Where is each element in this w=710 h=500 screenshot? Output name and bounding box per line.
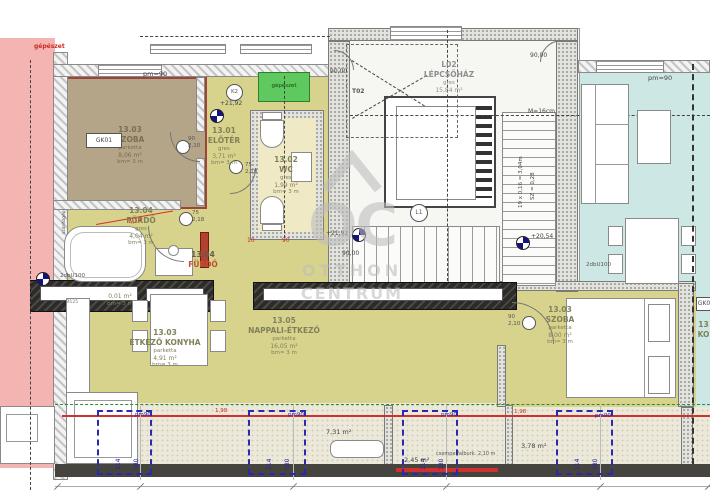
terrace-area-2: 2,45 m² [404, 456, 429, 464]
sofa [581, 84, 629, 204]
room-height: bm= 3 m [110, 362, 220, 369]
window-marker-3: 114 180 [402, 410, 458, 475]
pillow [648, 304, 670, 342]
room-area: 8,00 m² [530, 332, 590, 340]
door-width: 90 [188, 136, 195, 142]
k2-tag-label: K2 [231, 89, 238, 95]
room-finish: parketta [110, 348, 220, 355]
neighbor-unit-left [0, 38, 55, 468]
pm90-window-3: pm90 [441, 412, 457, 418]
tile-cladding-note: csempe falburk. 2,10 m [436, 451, 495, 457]
window-marker-2: 114 180 [248, 410, 306, 475]
room-label-furdo-2: 13.04 FÜRDŐ [180, 250, 226, 270]
room-label-nappali: 13.05 NAPPALI-ÉTKEZŐ parketta 16,05 m² b… [238, 316, 330, 358]
dimension-chain [55, 486, 710, 487]
neighbor-dining-table [625, 218, 679, 284]
gepeszet-note: gépészet [34, 43, 65, 50]
kitchen-counter [66, 298, 90, 394]
room-height: bm= 3 m [530, 339, 590, 346]
room-height: bm= 3 m [196, 160, 252, 167]
gk01-tag: GK01 [86, 133, 122, 148]
k2-tag: K2 [226, 84, 243, 101]
window-height: 180 [133, 459, 140, 470]
room-name: NAPPALI-ÉTKEZŐ [238, 326, 330, 336]
toilet-1 [260, 120, 284, 148]
room-name: FÜRDŐ [180, 260, 226, 270]
window-width: 114 [115, 459, 122, 470]
door-height: 2,18 [245, 169, 257, 175]
room-finish: gres [413, 80, 485, 87]
chair [608, 226, 623, 246]
pillow [648, 356, 670, 394]
room-label-staircase: L02 LÉPCSŐHÁZ gres 15,84 m² [413, 60, 485, 94]
red-dim-90: 90 [282, 237, 290, 244]
door-width: 90 [508, 314, 515, 320]
room-name: KO [697, 330, 710, 340]
room-height: bm= 3 m [80, 159, 180, 166]
t02-label: T02 [352, 88, 364, 95]
terrace-edge-line [55, 404, 710, 405]
axis-left [30, 60, 31, 490]
door-width: 75 [245, 162, 252, 168]
room-area: 16,05 m² [238, 343, 330, 351]
room-area: 4,91 m² [110, 355, 220, 363]
axis-top [140, 36, 330, 37]
room-finish: gres [196, 146, 252, 153]
stair-step-formula: 19 x 0,16 = 3,04m [518, 156, 524, 208]
toilet-2 [260, 196, 284, 224]
room-id: 13.01 [196, 126, 252, 136]
room-id: L02 [413, 60, 485, 70]
room-label-neighbor-kitchen: 13 KO [697, 320, 710, 340]
room-height: bm= 3 m [112, 240, 170, 247]
survey-marker [516, 236, 530, 250]
gk-right-tag: GK0 [696, 297, 710, 311]
lift-tag: L1 [410, 204, 428, 222]
stair-tread-width: SZ = 0,28 [530, 172, 536, 200]
window-neighbor [596, 60, 664, 73]
room-area: 4,04 m² [112, 233, 170, 241]
red-dim-198: 1,98 [514, 409, 526, 415]
terrace-area-3: 3,78 m² [521, 442, 546, 450]
window-height: 180 [592, 459, 599, 470]
room-label-eloter: 13.01 ELŐTÉR gres 3,71 m² bm= 3 m [196, 126, 252, 168]
window-width: 114 [574, 459, 581, 470]
room-finish: parketta [530, 325, 590, 332]
sofa-cushion-line [595, 164, 629, 165]
room-id: 13.04 [112, 206, 170, 216]
red-dim-10: 10 [247, 237, 255, 244]
room-name: SZOBA [530, 315, 590, 325]
sofa-cushion-line [595, 124, 629, 125]
window-height: 180 [438, 459, 445, 470]
room-area: 0,01 m² [100, 293, 140, 301]
angle-90-right: 90,00 [530, 52, 547, 59]
pm90-top-left: pm=90 [143, 70, 167, 78]
room-name: ÉTKEZŐ KONYHA [110, 338, 220, 348]
coffee-table [637, 110, 671, 164]
door-width: 75 [192, 210, 199, 216]
room-label-bedroom2: 13.03 SZOBA parketta 8,00 m² bm= 3 m [530, 305, 590, 347]
pm90-window-4: pm90 [595, 413, 611, 419]
watermark-line1: OTTHON [296, 261, 408, 280]
u100-note-left: 2dbU100 [60, 273, 85, 279]
window-marker-1: 114 180 [97, 410, 152, 475]
survey-marker [210, 109, 224, 123]
window-marker-4: 114 180 [556, 410, 613, 475]
room-finish: gres [112, 226, 170, 233]
stair-flight-right [502, 112, 556, 286]
sofa-back-line [595, 84, 596, 204]
bed-headboard-line [644, 298, 645, 398]
gk-right-label: GK0 [698, 300, 710, 307]
angle-90-left: 90,00 [330, 68, 347, 75]
room-id: 13.04 [180, 250, 226, 260]
room-area: 15,84 m² [413, 87, 485, 95]
scale-note: M=16cm [528, 108, 555, 115]
window-width: 114 [266, 459, 273, 470]
red-dim-198: 1,98 [215, 408, 227, 414]
u100-note-right: 2dbU100 [586, 262, 611, 268]
bedroom1-wall-right-upper [196, 77, 205, 132]
room-id: 13.03 [110, 328, 220, 338]
pipe-note: Ø125 [66, 300, 78, 305]
chair [210, 300, 226, 322]
room-area: 8,06 m² [80, 152, 180, 160]
room-height: bm= 3 m [238, 350, 330, 357]
watermark-line2: CENTRUM [296, 284, 408, 303]
survey-marker [36, 272, 50, 286]
room-label-konyha: 13.03 ÉTKEZŐ KONYHA parketta 4,91 m² bm=… [110, 328, 220, 370]
room-label-hidden: 0,01 m² bm= 3 m [100, 293, 140, 308]
room-height: bm= 3 m [100, 301, 140, 308]
watermark-initials: OC [296, 198, 408, 253]
toilet-cistern-2 [262, 224, 282, 231]
neighbor-terrace-inner [6, 414, 38, 442]
room-id: 13.03 [530, 305, 590, 315]
room-name: ELŐTÉR [196, 136, 252, 146]
pm90-neighbor: pm=90 [648, 74, 672, 82]
elevator-machinery [476, 106, 492, 198]
level-2054: +20,54 [531, 233, 553, 240]
floor-plan: gépészet L1 [0, 0, 710, 500]
room-id: 13 [697, 320, 710, 330]
exterior-sill-1 [150, 44, 226, 54]
stair-wall-right [556, 41, 578, 292]
window-height: 180 [284, 459, 291, 470]
room-area: 3,71 m² [196, 153, 252, 161]
terrace-area-1: 7,31 m² [326, 428, 351, 436]
gk01-label: GK01 [96, 137, 112, 144]
toilet-cistern-1 [262, 112, 282, 120]
level-2192-a: +21,92 [220, 100, 242, 107]
room-finish: parketta [238, 336, 330, 343]
room-name: LÉPCSŐHÁZ [413, 70, 485, 80]
door-height: 2,18 [192, 217, 204, 223]
exterior-sill-2 [240, 44, 312, 54]
terrace-skylight [330, 440, 384, 458]
pm90-window-2: pm90 [288, 412, 304, 418]
house-roof-icon [317, 144, 387, 194]
room-label-furdo: 13.04 FÜRDŐ gres 4,04 m² bm= 3 m [112, 206, 170, 248]
door-tag [179, 212, 193, 226]
door-height: 2,10 [188, 143, 200, 149]
lift-tag-label: L1 [415, 209, 422, 216]
door-height: 2,10 [508, 321, 520, 327]
room-id: 13.05 [238, 316, 330, 326]
bedroom2-wall-left-lower [497, 345, 506, 407]
window-staircase [390, 26, 462, 41]
pm90-window-1: pm90 [135, 412, 151, 418]
dryer-note: szárítógép [62, 210, 67, 234]
watermark: OC OTTHON CENTRUM [296, 144, 408, 303]
